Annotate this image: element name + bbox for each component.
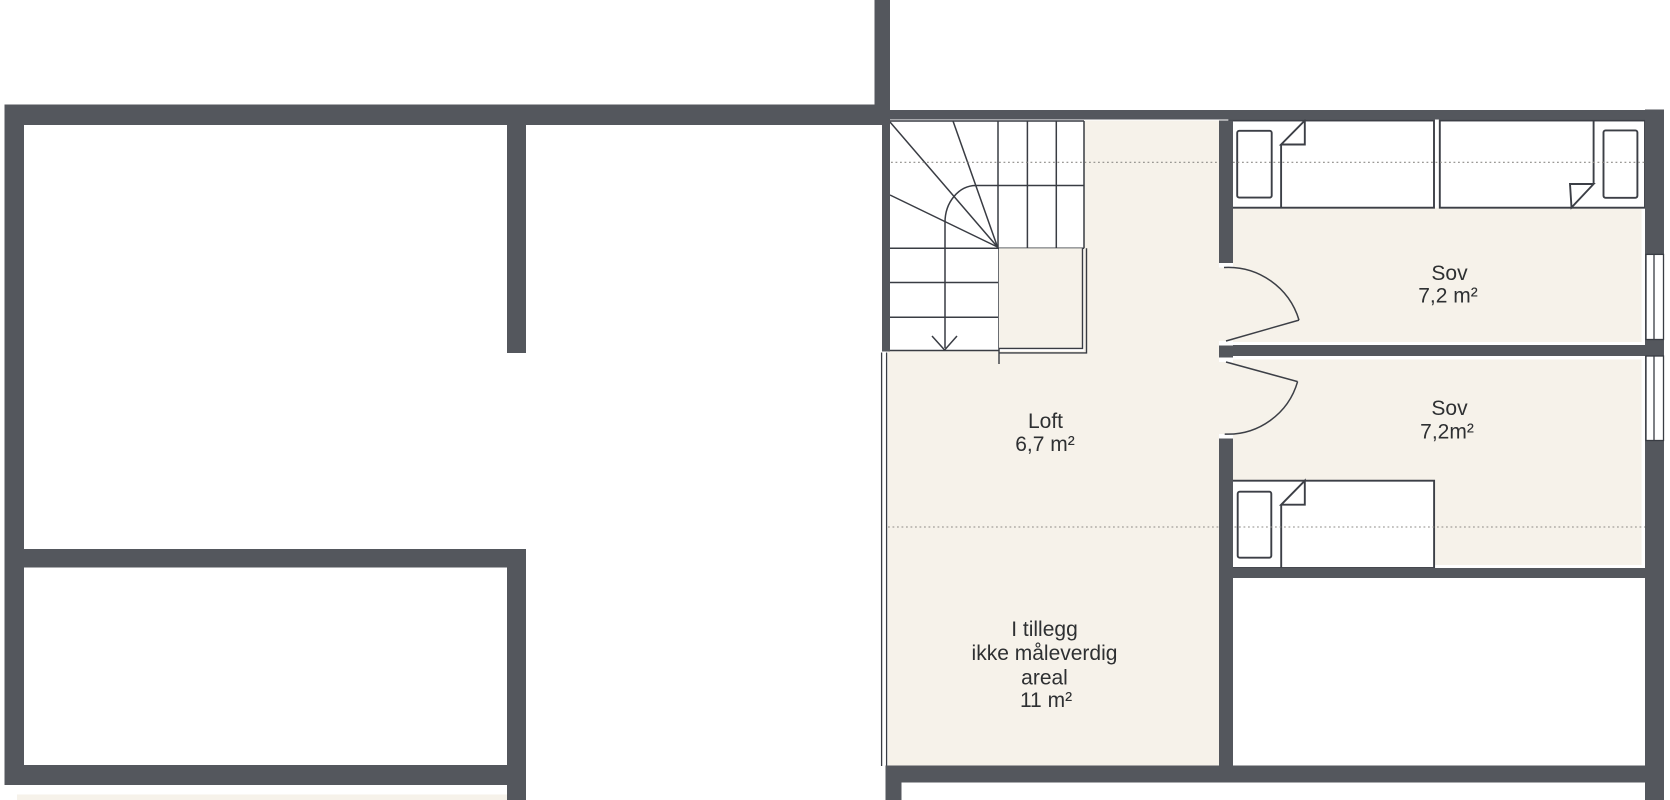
svg-text:Loft: Loft [1028, 410, 1063, 433]
svg-text:ikke måleverdig: ikke måleverdig [972, 642, 1118, 665]
svg-text:7,2 m²: 7,2 m² [1418, 285, 1478, 308]
svg-text:7,2m²: 7,2m² [1420, 421, 1474, 444]
svg-text:Sov: Sov [1431, 397, 1468, 420]
svg-text:11 m²: 11 m² [1020, 689, 1072, 712]
svg-text:I tillegg: I tillegg [1011, 618, 1078, 641]
svg-text:Sov: Sov [1431, 262, 1468, 285]
svg-text:areal: areal [1021, 667, 1068, 690]
svg-text:6,7 m²: 6,7 m² [1015, 433, 1075, 456]
